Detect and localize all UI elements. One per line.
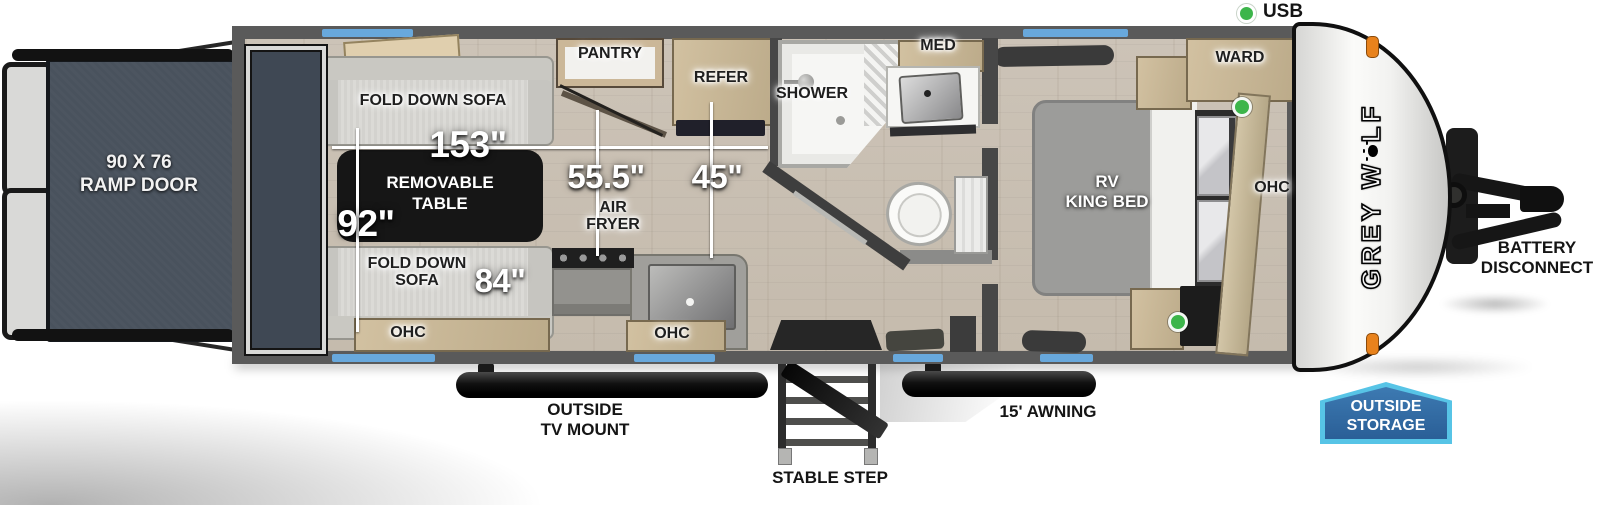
shower-label: SHOWER bbox=[776, 86, 848, 103]
dim-92-label: 92" bbox=[337, 203, 394, 245]
window-marker-kitchen-bottom bbox=[634, 354, 715, 362]
ohc-bedroom-label: OHC bbox=[1254, 180, 1290, 197]
pantry-text: PANTRY bbox=[578, 46, 642, 63]
table-text-1: REMOVABLE bbox=[386, 172, 493, 193]
awning-text: 15' AWNING bbox=[1000, 402, 1097, 422]
hitch-coupler bbox=[1520, 186, 1564, 212]
step-foot-right bbox=[864, 448, 878, 465]
bath-faucet bbox=[924, 90, 931, 97]
dim-55-label: 55.5" bbox=[567, 158, 644, 196]
ohc-kitchen-label: OHC bbox=[654, 326, 690, 343]
bath-vanity bbox=[886, 66, 980, 128]
usb-legend-label: USB bbox=[1263, 1, 1303, 23]
dim-84-text: 84" bbox=[475, 262, 526, 299]
usb-port-wardrobe bbox=[1232, 97, 1252, 117]
air-fryer-label: AIR FRYER bbox=[586, 200, 640, 234]
stable-step-label: STABLE STEP bbox=[772, 468, 888, 488]
tv-mount-text-2: TV MOUNT bbox=[541, 420, 630, 440]
awning-tube-right bbox=[902, 371, 1096, 397]
sofa-bottom-label: FOLD DOWN SOFA bbox=[368, 256, 467, 290]
ramp-door-text: RAMP DOOR bbox=[80, 175, 198, 198]
bedroom-soffit-bar bbox=[1022, 330, 1087, 353]
marker-light-bottom bbox=[1366, 333, 1379, 355]
table-label: REMOVABLE TABLE bbox=[386, 172, 493, 215]
table-text-2: TABLE bbox=[386, 193, 493, 214]
bed-sheet bbox=[1150, 102, 1197, 294]
refer-label: REFER bbox=[694, 70, 748, 87]
awning-label: 15' AWNING bbox=[1000, 402, 1097, 422]
med-label: MED bbox=[920, 38, 956, 55]
window-marker-entry-bottom bbox=[893, 354, 943, 362]
entry-rug bbox=[886, 328, 945, 351]
ward-label: WARD bbox=[1216, 50, 1265, 67]
bed-text-1: RV bbox=[1065, 172, 1148, 192]
air-fryer-text-2: FRYER bbox=[586, 217, 640, 234]
brand-logo: GREY WLF bbox=[1356, 76, 1388, 316]
headboard-shelf bbox=[994, 45, 1114, 67]
awning-tube-left bbox=[456, 372, 768, 398]
ohc-kitchen-text: OHC bbox=[654, 326, 690, 343]
ohc-garage-text: OHC bbox=[390, 325, 426, 342]
dim-45-text: 45" bbox=[692, 158, 743, 195]
ramp-rail-top bbox=[12, 49, 234, 61]
sofa-top-text: FOLD DOWN SOFA bbox=[360, 93, 507, 110]
sofa-bottom-text-1: FOLD DOWN bbox=[368, 256, 467, 273]
window-marker-garage-top bbox=[322, 29, 413, 37]
stove-cooktop bbox=[552, 248, 634, 268]
outside-storage-badge: OUTSIDE STORAGE bbox=[1320, 382, 1452, 444]
ward-text: WARD bbox=[1216, 50, 1265, 67]
window-marker-bedroom-top bbox=[1023, 29, 1128, 37]
med-text: MED bbox=[920, 38, 956, 55]
bed-text-2: KING BED bbox=[1065, 192, 1148, 212]
entry-mat bbox=[770, 320, 882, 350]
hitch-crossbar bbox=[1466, 204, 1510, 218]
marker-light-top bbox=[1366, 36, 1379, 58]
bath-sink bbox=[898, 72, 963, 124]
linen-cabinet bbox=[954, 176, 988, 254]
brand-text-1: GREY W bbox=[1356, 160, 1386, 289]
usb-port-nightstand bbox=[1168, 312, 1188, 332]
refer-text: REFER bbox=[694, 70, 748, 87]
stove-body bbox=[552, 268, 634, 316]
dim-153-text: 153" bbox=[429, 124, 506, 165]
battery-text-2: DISCONNECT bbox=[1481, 258, 1593, 278]
outside-storage-inner: OUTSIDE STORAGE bbox=[1325, 387, 1447, 439]
ramp-door bbox=[46, 58, 240, 342]
air-fryer-text-1: AIR bbox=[586, 200, 640, 217]
window-marker-garage-bottom bbox=[332, 354, 435, 362]
sofa-top-label: FOLD DOWN SOFA bbox=[360, 93, 507, 110]
ohc-cabinet-garage bbox=[354, 318, 550, 352]
storage-text-2: STORAGE bbox=[1347, 417, 1426, 435]
dim-line-153 bbox=[332, 146, 768, 149]
dim-84-label: 84" bbox=[475, 262, 526, 300]
toilet-lid bbox=[893, 188, 947, 242]
ohc-bedroom-text: OHC bbox=[1254, 180, 1290, 197]
shower-text: SHOWER bbox=[776, 86, 848, 103]
bath-wall-right-upper bbox=[982, 38, 998, 124]
bath-wall-stub bbox=[950, 316, 976, 352]
dim-55-text: 55.5" bbox=[567, 158, 644, 195]
tv-mount-label: OUTSIDE TV MOUNT bbox=[541, 400, 630, 439]
usb-legend-icon bbox=[1237, 4, 1256, 23]
dim-92-text: 92" bbox=[337, 203, 394, 244]
tv-mount-text-1: OUTSIDE bbox=[541, 400, 630, 420]
dim-153-label: 153" bbox=[429, 124, 506, 166]
storage-text-1: OUTSIDE bbox=[1350, 398, 1421, 416]
stable-step-text: STABLE STEP bbox=[772, 468, 888, 488]
ohc-garage-label: OHC bbox=[390, 325, 426, 342]
battery-disconnect-label: BATTERY DISCONNECT bbox=[1481, 238, 1593, 277]
paw-print-icon bbox=[1368, 145, 1378, 157]
hitch-shadow bbox=[1440, 294, 1550, 314]
window-marker-bedroom-bottom bbox=[1040, 354, 1093, 362]
rear-screen-door bbox=[246, 46, 326, 354]
dresser-cabinet bbox=[1136, 56, 1192, 110]
brand-text-2: LF bbox=[1356, 103, 1386, 143]
battery-text-1: BATTERY bbox=[1481, 238, 1593, 258]
ramp-rail-bottom bbox=[12, 329, 234, 341]
bed-label: RV KING BED bbox=[1065, 172, 1148, 213]
dim-45-label: 45" bbox=[692, 158, 743, 196]
shower-drain bbox=[836, 116, 845, 125]
usb-legend-text: USB bbox=[1263, 1, 1303, 23]
sofa-bottom-text-2: SOFA bbox=[368, 273, 467, 290]
refrigerator-base bbox=[676, 120, 765, 136]
floorplan-diagram: USB 90 X 76 RAMP DOOR FOLD DOWN SOFA 153… bbox=[0, 0, 1600, 505]
sink-faucet bbox=[686, 298, 694, 306]
ramp-door-label: 90 X 76 RAMP DOOR bbox=[80, 152, 198, 198]
ramp-size: 90 X 76 bbox=[80, 152, 198, 175]
pantry-label: PANTRY bbox=[578, 46, 642, 63]
step-foot-left bbox=[778, 448, 792, 465]
bath-wall-right-lower bbox=[982, 284, 998, 352]
